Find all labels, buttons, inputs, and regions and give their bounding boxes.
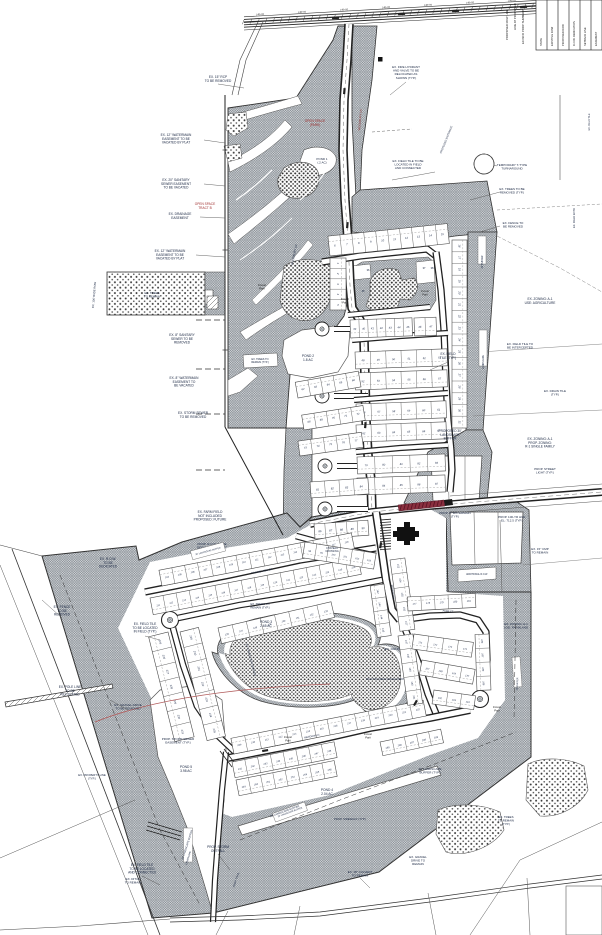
- svg-text:POND 1(.2 AC): POND 1(.2 AC): [316, 157, 328, 165]
- svg-text:EX. DRAINAGEEASEMENT: EX. DRAINAGEEASEMENT: [169, 212, 192, 220]
- svg-text:EX. 15" CMPTO REMAIN: EX. 15" CMPTO REMAIN: [531, 547, 549, 555]
- svg-text:EX INFO PROP SUMMARY: EX INFO PROP SUMMARY: [521, 9, 525, 44]
- svg-text:LANDSCAPE: LANDSCAPE: [482, 355, 485, 369]
- svg-text:25: 25: [458, 349, 462, 353]
- svg-text:ADDITIONAL R.O.W.: ADDITIONAL R.O.W.: [466, 573, 488, 576]
- svg-text:EX. TREESTO REMAIN: EX. TREESTO REMAIN: [144, 291, 160, 299]
- svg-text:148+00: 148+00: [424, 3, 433, 6]
- svg-text:(EX. FIELD): (EX. FIELD): [384, 647, 400, 651]
- svg-text:EX. FIELD TILETO BE LOCATEDIN: EX. FIELD TILETO BE LOCATEDIN FIELD (TYP…: [132, 622, 158, 634]
- svg-text:26: 26: [458, 361, 462, 365]
- svg-text:23: 23: [458, 326, 462, 330]
- svg-text:EX. STORM SEWERTO BE REMOVED: EX. STORM SEWERTO BE REMOVED: [178, 411, 209, 419]
- svg-text:EX. FENCE TOBE REMOVED: EX. FENCE TOBE REMOVED: [503, 221, 524, 229]
- svg-text:EX. FARM FIELDNOT INCLUDEDPROP: EX. FARM FIELDNOT INCLUDEDPROPOSED: FUTU…: [194, 510, 227, 522]
- svg-text:EX. FIELD TILETO BE LOCATEDAND: EX. FIELD TILETO BE LOCATEDAND CONNECTED: [128, 863, 157, 875]
- svg-text:TEMPORARY T-TYPETURNAROUND: TEMPORARY T-TYPETURNAROUND: [497, 163, 527, 171]
- svg-text:R.O.W. DEDICATION: R.O.W. DEDICATION: [572, 21, 576, 46]
- svg-text:EX. 20" SANITARYSEWER EASEMENT: EX. 20" SANITARYSEWER EASEMENTTO BE VACA…: [161, 178, 191, 190]
- svg-text:17: 17: [458, 256, 462, 259]
- svg-text:EASEMENT: EASEMENT: [594, 31, 598, 46]
- svg-text:EX. DITCHTO REMAIN: EX. DITCHTO REMAIN: [125, 877, 142, 885]
- svg-text:EXISTING ROW: EXISTING ROW: [550, 26, 554, 46]
- svg-text:EX. GRAVEL DRIVETO BE REMOVED: EX. GRAVEL DRIVETO BE REMOVED: [114, 703, 142, 711]
- svg-text:PROP. STORM SEWEREASEMENT (TYP: PROP. STORM SEWEREASEMENT (TYP.): [162, 737, 195, 745]
- svg-text:POND 53.98 AC: POND 53.98 AC: [180, 765, 193, 773]
- svg-text:TRACT B (OPEN SPACE) PROP.: TRACT B (OPEN SPACE) PROP.: [366, 677, 405, 681]
- svg-text:22: 22: [458, 314, 462, 318]
- svg-text:EX. FIELDTILE (TYP.): EX. FIELDTILE (TYP.): [440, 352, 456, 360]
- svg-text:148+00: 148+00: [382, 6, 391, 9]
- svg-text:EX. FIELD TILE TO BELOCATED IN: EX. FIELD TILE TO BELOCATED IN FIELDAND …: [392, 159, 423, 170]
- svg-text:EX. FIELD TILE: EX. FIELD TILE: [588, 113, 591, 130]
- svg-text:16: 16: [458, 244, 462, 247]
- svg-text:27: 27: [458, 373, 462, 377]
- svg-text:31: 31: [458, 421, 462, 424]
- svg-text:148+00: 148+00: [466, 1, 475, 4]
- svg-text:19: 19: [458, 280, 462, 283]
- svg-text:EX. 12" WATERMAINEASEMENT TO B: EX. 12" WATERMAINEASEMENT TO BEVACATED B…: [161, 133, 192, 145]
- svg-text:20: 20: [458, 290, 462, 294]
- svg-text:24: 24: [458, 337, 462, 341]
- svg-text:PROP. STREETLIGHT (TYP.): PROP. STREETLIGHT (TYP.): [534, 467, 556, 475]
- svg-text:EX. TREES TO BEREMOVED (TYP.): EX. TREES TO BEREMOVED (TYP.): [499, 187, 524, 195]
- svg-text:EX. FIRE HYDRANTAND VALVE TO B: EX. FIRE HYDRANTAND VALVE TO BERELOCATED…: [392, 65, 420, 80]
- svg-text:POND 32.65 AC: POND 32.65 AC: [260, 620, 273, 628]
- svg-text:EX. ZONING: A-1USE: AGRICULTUR: EX. ZONING: A-1USE: AGRICULTURE: [525, 297, 556, 305]
- svg-text:EX. TREES TOREMAIN (TYP.): EX. TREES TOREMAIN (TYP.): [250, 602, 270, 609]
- svg-text:PROPOSED ROW: PROPOSED ROW: [561, 24, 565, 46]
- svg-text:EX. TREES TOREMAIN (TYP.): EX. TREES TOREMAIN (TYP.): [251, 358, 268, 364]
- svg-text:POND 42.04 AC: POND 42.04 AC: [321, 788, 334, 796]
- svg-text:20' LANDSCAPEBUFFER (TYP.): 20' LANDSCAPEBUFFER (TYP.): [419, 767, 442, 775]
- svg-text:148+00: 148+00: [298, 11, 307, 14]
- svg-text:LINE AT PROPOSED: LINE AT PROPOSED: [513, 3, 517, 30]
- svg-text:POND 21.8 AC: POND 21.8 AC: [302, 354, 314, 362]
- svg-text:EX. ZONING: A-1PROP. ZONING:R-: EX. ZONING: A-1PROP. ZONING:R-1 SINGLE F…: [525, 437, 556, 449]
- svg-text:20' BUFFER: 20' BUFFER: [482, 255, 484, 268]
- svg-text:28: 28: [458, 384, 462, 388]
- svg-text:18: 18: [458, 268, 462, 271]
- svg-text:SETBACK LINE: SETBACK LINE: [583, 27, 587, 46]
- svg-text:EX. 12" WATERMAINEASEMENT TO B: EX. 12" WATERMAINEASEMENT TO BEVACATED B…: [155, 249, 186, 261]
- svg-text:CHATEAUCROSSING: CHATEAUCROSSING: [325, 547, 338, 553]
- svg-text:29: 29: [458, 396, 462, 400]
- svg-text:PROP. 100-YR HWLEL: 712.5 (TYP: PROP. 100-YR HWLEL: 712.5 (TYP.): [498, 515, 526, 523]
- svg-text:21: 21: [458, 302, 462, 306]
- svg-text:PROPOSED ROW LINE: PROPOSED ROW LINE: [505, 9, 509, 40]
- svg-text:EX. ZONING: A-1USE: FARMLAND: EX. ZONING: A-1USE: FARMLAND: [504, 622, 529, 630]
- svg-text:30: 30: [458, 409, 462, 412]
- svg-text:EX. FIELD ENTR: EX. FIELD ENTR: [572, 208, 576, 228]
- svg-text:EX. FIELD TILE TOBE INTERCEPTE: EX. FIELD TILE TOBE INTERCEPTED: [507, 342, 534, 350]
- svg-text:148+00: 148+00: [340, 8, 349, 11]
- svg-text:PROP. SIDEWALK (TYP.): PROP. SIDEWALK (TYP.): [334, 817, 366, 821]
- svg-text:STATE: STATE: [539, 38, 543, 46]
- svg-text:148+00: 148+00: [256, 13, 265, 16]
